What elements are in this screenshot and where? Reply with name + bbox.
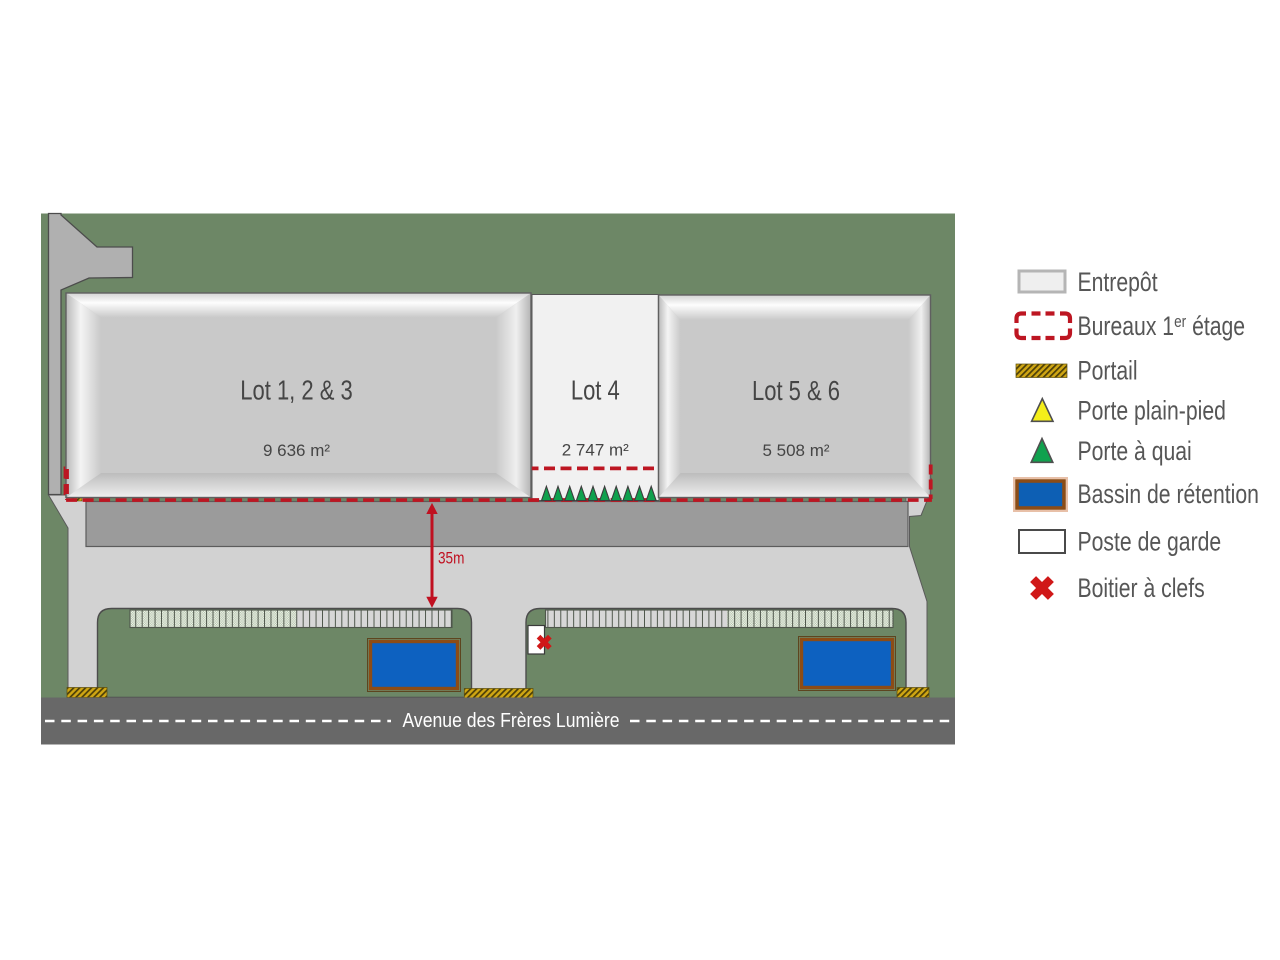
svg-text:Lot 1, 2 & 3: Lot 1, 2 & 3 <box>240 375 352 406</box>
svg-text:35m: 35m <box>438 549 464 568</box>
svg-text:Poste de garde: Poste de garde <box>1078 527 1222 557</box>
svg-text:5 508 m²: 5 508 m² <box>762 441 829 460</box>
svg-text:Bassin de rétention: Bassin de rétention <box>1078 480 1259 510</box>
svg-text:Porte plain-pied: Porte plain-pied <box>1078 396 1226 426</box>
svg-text:9 636 m²: 9 636 m² <box>263 441 330 460</box>
svg-text:Avenue des Frères Lumière: Avenue des Frères Lumière <box>402 710 619 733</box>
svg-text:Portail: Portail <box>1078 357 1138 387</box>
svg-text:Lot 5 & 6: Lot 5 & 6 <box>752 376 840 407</box>
svg-text:Porte à quai: Porte à quai <box>1078 437 1192 467</box>
svg-text:Entrepôt: Entrepôt <box>1078 268 1158 298</box>
svg-text:2 747 m²: 2 747 m² <box>562 441 629 460</box>
svg-text:Boitier à clefs: Boitier à clefs <box>1078 574 1205 604</box>
svg-text:Lot 4: Lot 4 <box>571 375 620 406</box>
svg-text:Bureaux 1er étage: Bureaux 1er étage <box>1078 312 1246 342</box>
